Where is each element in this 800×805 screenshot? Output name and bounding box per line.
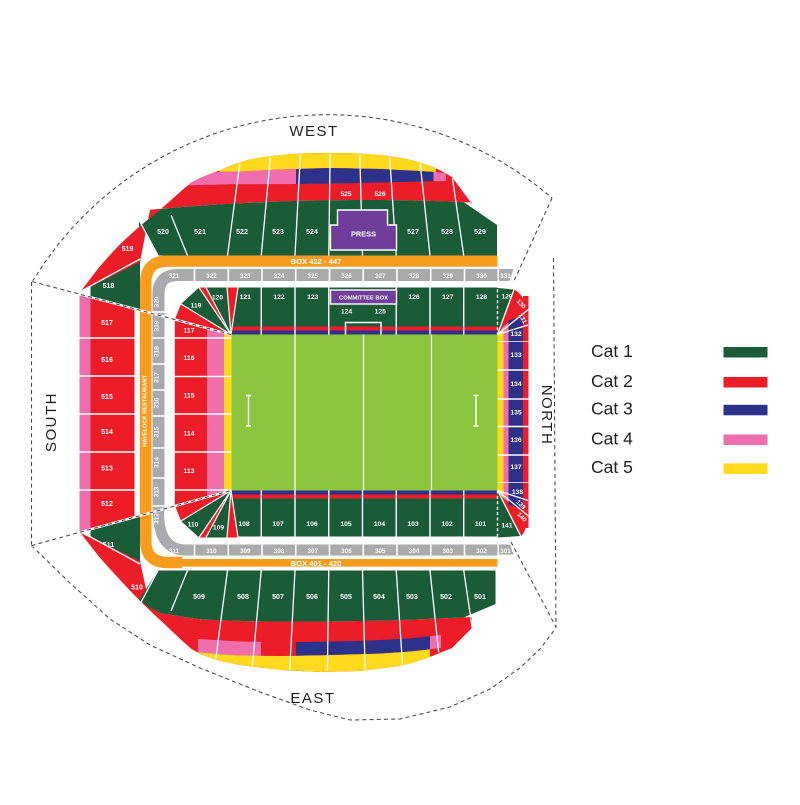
svg-text:307: 307 (307, 548, 318, 555)
svg-text:126: 126 (408, 294, 420, 301)
svg-text:315: 315 (154, 426, 161, 437)
svg-text:138: 138 (512, 489, 523, 496)
svg-text:104: 104 (374, 521, 386, 528)
svg-text:106: 106 (306, 521, 318, 528)
svg-text:COMMITTEE BOX: COMMITTEE BOX (339, 296, 388, 302)
svg-text:502: 502 (440, 594, 452, 601)
svg-text:132: 132 (510, 331, 522, 338)
svg-text:527: 527 (407, 229, 419, 236)
svg-text:326: 326 (341, 273, 352, 280)
svg-text:312: 312 (154, 513, 161, 524)
svg-text:110: 110 (188, 522, 199, 529)
svg-text:PRESS: PRESS (351, 230, 376, 239)
svg-text:127: 127 (442, 294, 454, 301)
svg-text:517: 517 (101, 320, 113, 327)
svg-text:328: 328 (409, 273, 420, 280)
svg-text:117: 117 (184, 328, 195, 335)
svg-text:318: 318 (154, 346, 161, 357)
svg-text:113: 113 (184, 468, 195, 475)
svg-text:129: 129 (501, 294, 512, 301)
svg-text:331: 331 (500, 273, 511, 280)
svg-text:119: 119 (191, 303, 202, 310)
svg-text:305: 305 (375, 548, 386, 555)
svg-text:520: 520 (157, 229, 169, 236)
svg-text:510: 510 (131, 585, 143, 592)
svg-text:524: 524 (306, 229, 318, 236)
svg-text:329: 329 (442, 273, 453, 280)
svg-text:Cat 1: Cat 1 (591, 341, 633, 361)
svg-text:501: 501 (474, 594, 486, 601)
svg-text:Cat 5: Cat 5 (591, 457, 633, 477)
svg-text:Cat 4: Cat 4 (591, 428, 633, 448)
svg-text:514: 514 (101, 429, 113, 436)
svg-text:322: 322 (206, 273, 217, 280)
svg-text:528: 528 (441, 229, 453, 236)
svg-text:114: 114 (184, 431, 195, 438)
svg-text:121: 121 (240, 294, 252, 301)
svg-text:124: 124 (341, 309, 353, 316)
svg-text:515: 515 (101, 394, 113, 401)
svg-text:320: 320 (154, 296, 161, 307)
svg-text:518: 518 (103, 283, 115, 290)
svg-text:135: 135 (510, 410, 522, 417)
svg-text:103: 103 (407, 521, 419, 528)
svg-text:306: 306 (341, 548, 352, 555)
svg-text:516: 516 (101, 357, 113, 364)
svg-text:509: 509 (193, 594, 205, 601)
svg-text:529: 529 (474, 229, 486, 236)
svg-text:506: 506 (306, 594, 318, 601)
svg-text:503: 503 (406, 594, 418, 601)
svg-text:BOX 432 - 447: BOX 432 - 447 (291, 257, 342, 266)
svg-text:508: 508 (237, 594, 249, 601)
svg-text:105: 105 (340, 521, 352, 528)
svg-text:137: 137 (510, 464, 522, 471)
svg-text:120: 120 (212, 295, 223, 302)
svg-text:133: 133 (510, 352, 522, 359)
svg-text:317: 317 (154, 372, 161, 383)
svg-text:123: 123 (307, 294, 319, 301)
svg-text:327: 327 (375, 273, 386, 280)
svg-text:525: 525 (340, 191, 351, 198)
svg-text:128: 128 (476, 294, 488, 301)
svg-text:308: 308 (274, 548, 285, 555)
svg-text:325: 325 (307, 273, 318, 280)
svg-text:SOUTH: SOUTH (43, 392, 60, 452)
svg-text:313: 313 (154, 486, 161, 497)
svg-text:102: 102 (441, 521, 453, 528)
svg-text:522: 522 (236, 229, 248, 236)
svg-text:324: 324 (274, 273, 285, 280)
svg-text:101: 101 (475, 521, 487, 528)
svg-text:136: 136 (510, 437, 522, 444)
svg-text:526: 526 (374, 191, 385, 198)
svg-text:134: 134 (510, 381, 522, 388)
svg-text:Cat 3: Cat 3 (591, 399, 633, 419)
svg-text:521: 521 (194, 229, 206, 236)
svg-text:314: 314 (154, 457, 161, 468)
svg-text:303: 303 (442, 548, 453, 555)
svg-text:115: 115 (184, 393, 195, 400)
svg-text:505: 505 (340, 594, 352, 601)
svg-text:125: 125 (375, 309, 387, 316)
svg-text:304: 304 (409, 548, 420, 555)
svg-text:141: 141 (501, 523, 512, 530)
svg-text:107: 107 (272, 521, 284, 528)
svg-text:316: 316 (154, 397, 161, 408)
svg-text:512: 512 (101, 501, 113, 508)
svg-text:319: 319 (154, 320, 161, 331)
svg-text:109: 109 (213, 525, 224, 532)
svg-text:NORTH: NORTH (538, 385, 555, 446)
svg-text:519: 519 (122, 246, 134, 253)
svg-text:321: 321 (169, 273, 180, 280)
svg-text:WEST: WEST (289, 123, 338, 140)
svg-text:HAVELOCK RESTAURANT: HAVELOCK RESTAURANT (142, 375, 148, 447)
svg-text:513: 513 (101, 466, 113, 473)
svg-text:122: 122 (273, 294, 285, 301)
svg-text:BOX 401 - 420: BOX 401 - 420 (291, 559, 342, 568)
svg-text:302: 302 (476, 548, 487, 555)
svg-text:108: 108 (238, 521, 250, 528)
svg-text:Cat 2: Cat 2 (591, 371, 633, 391)
svg-text:116: 116 (184, 355, 195, 362)
svg-text:323: 323 (240, 273, 251, 280)
svg-text:523: 523 (272, 229, 284, 236)
svg-text:330: 330 (476, 273, 487, 280)
svg-text:301: 301 (500, 548, 511, 555)
svg-text:309: 309 (240, 548, 251, 555)
svg-text:504: 504 (373, 594, 385, 601)
svg-text:EAST: EAST (290, 690, 335, 707)
svg-text:310: 310 (206, 548, 217, 555)
svg-text:311: 311 (169, 548, 180, 555)
svg-text:507: 507 (272, 594, 284, 601)
